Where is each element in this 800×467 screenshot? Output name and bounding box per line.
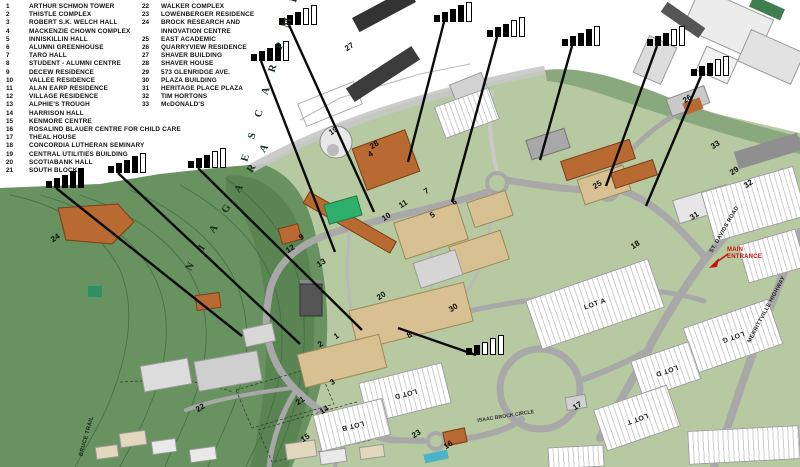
map-label: BRUCE TRAIL (78, 416, 95, 457)
map-label: ISAAC BROCK CIRCLE (477, 409, 535, 424)
campus-map-screenshot: LOT ALOT GLOT DLOT TLOT DLOT B 1ARTHUR S… (0, 0, 800, 467)
map-label: E S C A R P M E N T (239, 0, 316, 163)
map-label: MERRITTVILLE HIGHWAY (747, 275, 787, 344)
map-labels-layer: N I A G A R AE S C A R P M E N TST. DAVI… (0, 0, 800, 467)
main-entrance-line2: ENTRANCE (727, 254, 762, 261)
main-entrance-label: MAIN ENTRANCE (727, 247, 762, 260)
map-label: N I A G A R A (184, 137, 275, 273)
